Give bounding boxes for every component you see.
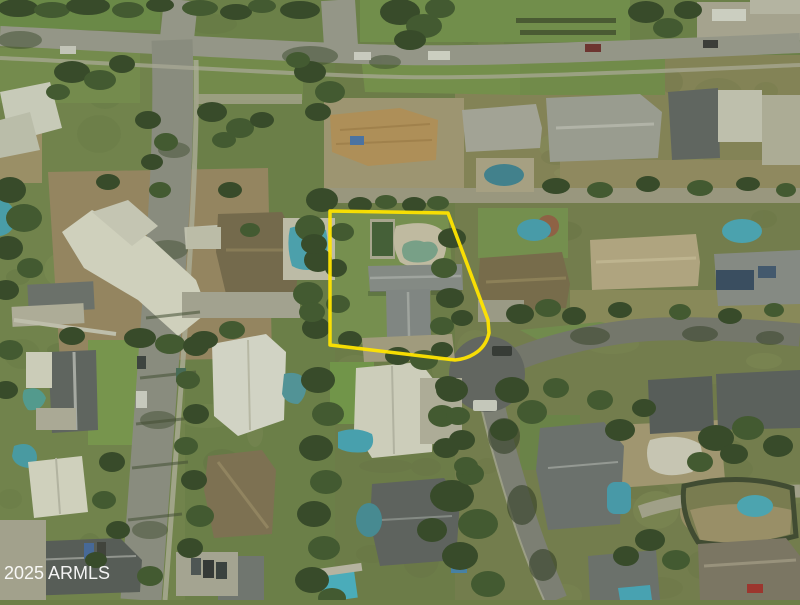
svg-text:2025 ARMLS: 2025 ARMLS <box>4 563 110 583</box>
